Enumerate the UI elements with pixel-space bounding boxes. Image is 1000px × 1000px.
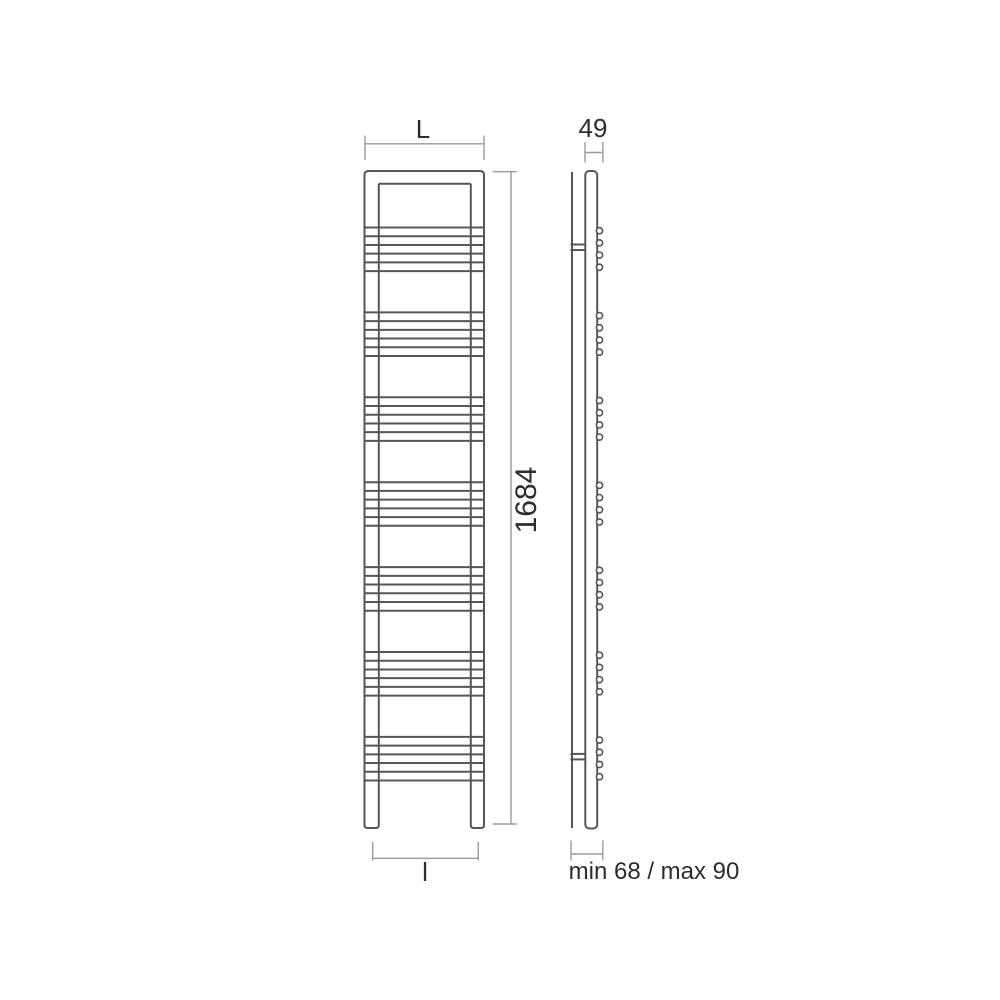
dimension-label-width: L [416, 116, 430, 142]
side-hook-circle [596, 349, 602, 355]
side-hook-circle [596, 774, 602, 780]
dimension-label-height: 1684 [512, 467, 542, 534]
side-hook-circle [596, 592, 602, 598]
front-leg [365, 781, 379, 829]
technical-drawing-canvas: L 49 1684 l min 68 / max 90 [0, 0, 1000, 1000]
side-hook-circle [596, 422, 602, 428]
dimension-label-foot-spacing: l [422, 859, 428, 885]
side-hook-circle [596, 240, 602, 246]
side-hook-circle [596, 325, 602, 331]
side-hook-circle [596, 434, 602, 440]
side-hook-circle [596, 482, 602, 488]
side-hook-circle [596, 264, 602, 270]
side-hook-circle [596, 579, 602, 585]
radiator-elevation-drawing [0, 0, 1000, 1000]
side-hook-circle [596, 664, 602, 670]
side-hook-circle [596, 507, 602, 513]
side-hook-circle [596, 652, 602, 658]
side-hook-circle [596, 761, 602, 767]
side-hook-circle [596, 677, 602, 683]
dimension-label-wall-distance: min 68 / max 90 [569, 860, 740, 884]
side-hook-circle [596, 567, 602, 573]
side-body-profile [585, 171, 597, 829]
dimension-label-depth: 49 [579, 115, 608, 141]
side-hook-circle [596, 228, 602, 234]
side-hook-circle [596, 737, 602, 743]
side-hook-circle [596, 689, 602, 695]
front-leg [471, 781, 484, 829]
side-hook-circle [596, 337, 602, 343]
side-hook-circle [596, 252, 602, 258]
side-hook-circle [596, 313, 602, 319]
side-hook-circle [596, 495, 602, 501]
side-hook-circle [596, 749, 602, 755]
side-hook-circle [596, 519, 602, 525]
side-hook-circle [596, 397, 602, 403]
side-hook-circle [596, 410, 602, 416]
side-hook-circle [596, 604, 602, 610]
